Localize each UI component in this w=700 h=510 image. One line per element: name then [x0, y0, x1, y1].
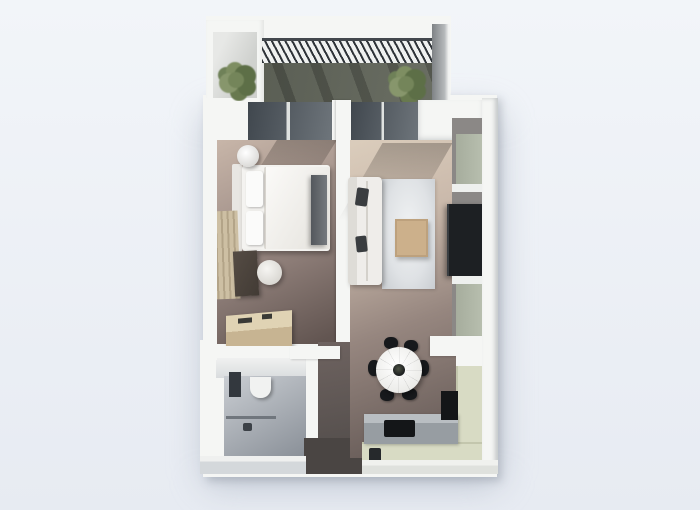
plant-left-icon [228, 72, 244, 88]
media-wall-shelf [452, 184, 482, 192]
floor-plan-render [0, 0, 700, 510]
toilet [250, 377, 271, 398]
media-wall-panel-bottom [456, 284, 482, 340]
balcony-parapet-inner-floor [213, 32, 257, 98]
plant-right-icon [398, 76, 414, 92]
coffee-table [395, 219, 428, 257]
dresser-decor-item [262, 314, 272, 320]
shower-glass-partition [226, 416, 276, 419]
bathroom-window-slot [229, 372, 241, 397]
media-wall-shelf [452, 276, 482, 284]
shower-fixture [243, 423, 252, 431]
sofa-throw-pillow [355, 187, 369, 206]
media-wall-panel-top [456, 134, 482, 184]
outer-wall-bottom-right [362, 460, 498, 474]
bedroom-tv-panel [311, 175, 327, 245]
balcony-railing [262, 38, 434, 63]
bed-pillow-top [246, 171, 263, 207]
kitchen-sink-appliance [441, 391, 458, 420]
outer-wall-right [482, 98, 498, 468]
outer-wall-left-lower [200, 340, 216, 472]
living-room-tv [447, 204, 483, 276]
dining-table-centerpiece [393, 364, 405, 376]
hallway-wall-stub [290, 346, 340, 359]
bedroom-balcony-glass-door [248, 102, 332, 144]
bed-pillow-bottom [246, 211, 263, 245]
sofa-throw-pillow [355, 235, 368, 252]
outer-wall-left-upper [203, 98, 217, 360]
bedroom-desk-chair [257, 260, 282, 285]
cooktop [384, 420, 415, 437]
balcony-right-wall [432, 24, 450, 110]
bedroom-desk [233, 250, 259, 296]
bedside-table [237, 145, 259, 167]
outer-wall-bottom-left [200, 456, 306, 474]
